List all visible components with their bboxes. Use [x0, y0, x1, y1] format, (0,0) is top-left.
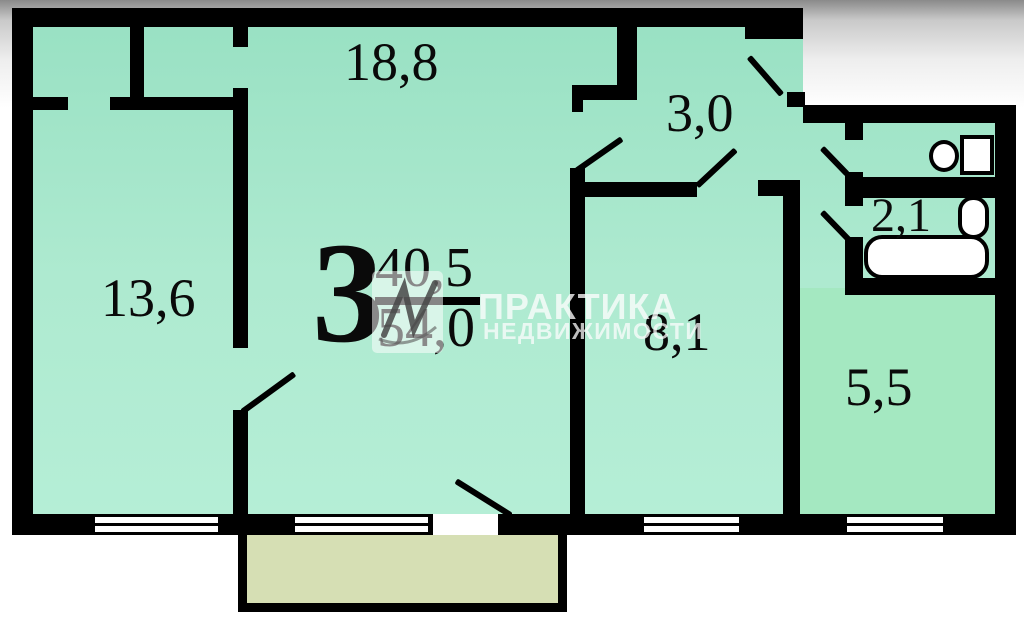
wall-13-18-upper-stub [233, 27, 248, 47]
wall-bath-bottom [845, 278, 1016, 295]
wall-wc-door-stub [845, 123, 863, 140]
wall-closet-divider [130, 27, 144, 103]
window-living-room [295, 514, 428, 535]
wall-81-kitchen-divider [783, 180, 800, 515]
label-hallway-area: 3,0 [666, 86, 734, 140]
label-bathroom-area: 2,1 [871, 192, 931, 240]
watermark-logo [372, 271, 443, 353]
wall-hall-step-stub [572, 85, 583, 112]
wall-bath-left-lower [845, 237, 863, 280]
wall-81-top [570, 182, 697, 197]
watermark-logo-glyph [372, 271, 443, 353]
balcony [238, 535, 567, 612]
label-living-room-area: 18,8 [344, 35, 439, 89]
wall-13-18-lower [233, 410, 248, 515]
balcony-door-opening [433, 514, 498, 535]
wall-entrance-top [745, 27, 803, 39]
wall-outer-top [12, 8, 803, 27]
wall-outer-left [12, 8, 33, 535]
wall-outer-top-right [803, 105, 1016, 123]
label-bedroom-left-area: 13,6 [101, 271, 196, 325]
window-kitchen [847, 514, 943, 535]
watermark-subtitle: НЕДВИЖИМОСТИ [483, 318, 703, 345]
toilet-bowl-icon [929, 140, 959, 172]
wall-bath-left-upper [845, 198, 863, 206]
window-bedroom-right [644, 514, 739, 535]
toilet-tank-icon [960, 135, 994, 175]
floor-plan: 18,8 13,6 3,0 8,1 2,1 5,5 3 40,5 54,0 ПР… [0, 0, 1024, 619]
wall-outer-right [995, 105, 1016, 535]
label-kitchen-area: 5,5 [845, 360, 913, 414]
sink-icon [958, 196, 989, 239]
window-bedroom-left [95, 514, 218, 535]
wall-closet-bottom-left [33, 97, 68, 110]
wall-13-18-main [233, 88, 248, 348]
